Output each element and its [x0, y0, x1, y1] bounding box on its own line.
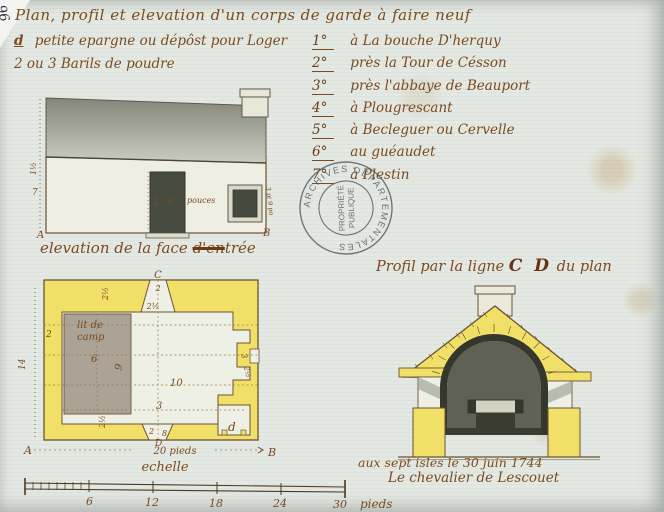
scale-unit-label: pieds	[360, 497, 392, 511]
bed-label-1: lit de	[77, 320, 103, 331]
bottom-wall-dim: 2½	[98, 415, 107, 429]
location-name: à La bouche D'herquy	[350, 33, 500, 49]
latrine-jamb	[222, 430, 227, 435]
footer-dateline: aux sept isles le 30 juin 1744	[358, 455, 543, 470]
tick-label-30: 30	[333, 498, 347, 511]
depth-dim: 14	[18, 358, 28, 370]
location-name: près la Tour de Césson	[350, 55, 506, 71]
door-sill	[146, 233, 189, 238]
location-num: 3°	[312, 79, 334, 95]
fireplace-opening	[476, 413, 515, 433]
scale-caption: echelle	[141, 460, 188, 475]
location-num: 5°	[312, 123, 334, 139]
major-ticks	[89, 480, 281, 495]
scale-bar: 6 12 18 24 30 pieds	[15, 478, 415, 512]
caption-prefix: elevation de la face	[40, 239, 193, 257]
tick-label-12: 12	[145, 496, 159, 509]
bed-width-dim: 6	[91, 354, 98, 365]
profile-chimney-cap	[475, 286, 515, 294]
tick-label-24: 24	[272, 497, 287, 510]
document-title: Plan, profil et elevation d'un corps de …	[15, 6, 471, 24]
location-item: 5° à Becleguer ou Cervelle	[312, 119, 530, 141]
door-unit-label: pouces	[187, 196, 215, 205]
profile-title-cd: C D	[509, 256, 552, 276]
tick-label-18: 18	[209, 497, 223, 510]
bottom-door-dim-b: 8	[162, 429, 167, 438]
chimney	[242, 95, 268, 117]
pier-right	[548, 408, 580, 457]
pier-left	[413, 408, 445, 457]
bed-label-2: camp	[77, 332, 105, 343]
roof-height-label: 1½	[30, 162, 38, 175]
profile-drawing	[395, 280, 615, 460]
elevation-caption: elevation de la face d'entrée	[40, 239, 256, 257]
location-num: 4°	[312, 101, 334, 117]
plan-drawing: C 2 2½ 2½ 2 14 lit de camp 6 9 10 3 2 8 …	[15, 270, 305, 475]
location-item: 4° à Plougrescant	[312, 97, 530, 119]
plan-point-a: A	[23, 444, 32, 457]
plan-window-slit	[250, 349, 259, 363]
window	[233, 190, 257, 217]
location-num: 2°	[312, 56, 334, 72]
left-width-dim: 2	[45, 330, 52, 340]
eave-left	[399, 368, 447, 377]
point-b-label: B	[262, 228, 270, 239]
latrine-label: d	[228, 420, 236, 434]
top-splay-dim: 2½	[146, 302, 160, 311]
top-wall-dim: 2½	[101, 287, 110, 301]
stamp-center-line1: PROPRIÉTÉ	[336, 185, 347, 232]
location-item: 1° à La bouche D'herquy	[312, 30, 530, 52]
location-item: 3° près l'abbaye de Beauport	[312, 75, 530, 97]
door-dim-label: 2 - 8	[152, 198, 173, 208]
lintel-corbel-left	[468, 400, 476, 413]
tick-label-6: 6	[86, 495, 93, 508]
bottom-mid-dim: 3	[156, 401, 162, 412]
bottom-door-dim-a: 2	[148, 427, 154, 436]
location-num: 1°	[312, 34, 334, 50]
latrine-jamb	[241, 430, 246, 435]
header-note-line2: 2 ou 3 Barils de poudre	[14, 56, 175, 72]
location-item: 2° près la Tour de Césson	[312, 52, 530, 74]
location-name: près l'abbaye de Beauport	[350, 78, 530, 94]
lintel-corbel-right	[515, 400, 523, 413]
manuscript-sheet: 96 Plan, profil et elevation d'un corps …	[0, 0, 664, 512]
wall-height-label: 7	[32, 188, 38, 198]
caption-suffix: trée	[225, 239, 256, 257]
plan-point-b: B	[267, 446, 276, 459]
caption-struck-word: d'en	[193, 239, 225, 257]
location-name: à Plougrescant	[350, 100, 452, 116]
chimney-cap	[240, 89, 270, 97]
stamp-center-line2: PUBLIQUE	[346, 187, 356, 228]
elevation-roof	[46, 98, 266, 163]
point-c-label: C	[154, 270, 162, 281]
stamp-center: PROPRIÉTÉ PUBLIQUE	[336, 185, 357, 232]
eave-right	[544, 372, 591, 381]
note-line1-text: petite epargne ou dépôst pour Loger	[35, 33, 287, 49]
room-length-dim: 10	[170, 378, 183, 389]
profile-title-prefix: Profil par la ligne	[376, 259, 509, 275]
fireplace-lintel	[468, 400, 523, 413]
location-name: à Becleguer ou Cervelle	[350, 122, 514, 138]
profile-title-suffix: du plan	[557, 259, 612, 275]
note-prefix: d	[14, 33, 23, 49]
header-note-line1: d petite epargne ou dépôst pour Loger	[14, 33, 287, 49]
top-door-dim: 2	[154, 284, 160, 293]
profile-title: Profil par la ligne C D du plan	[376, 256, 612, 276]
elevation-drawing: 1½ 7 2 - 8 pouces 3 pi 9 po A B	[30, 85, 310, 240]
plan-width-label: 20 pieds	[153, 446, 197, 457]
